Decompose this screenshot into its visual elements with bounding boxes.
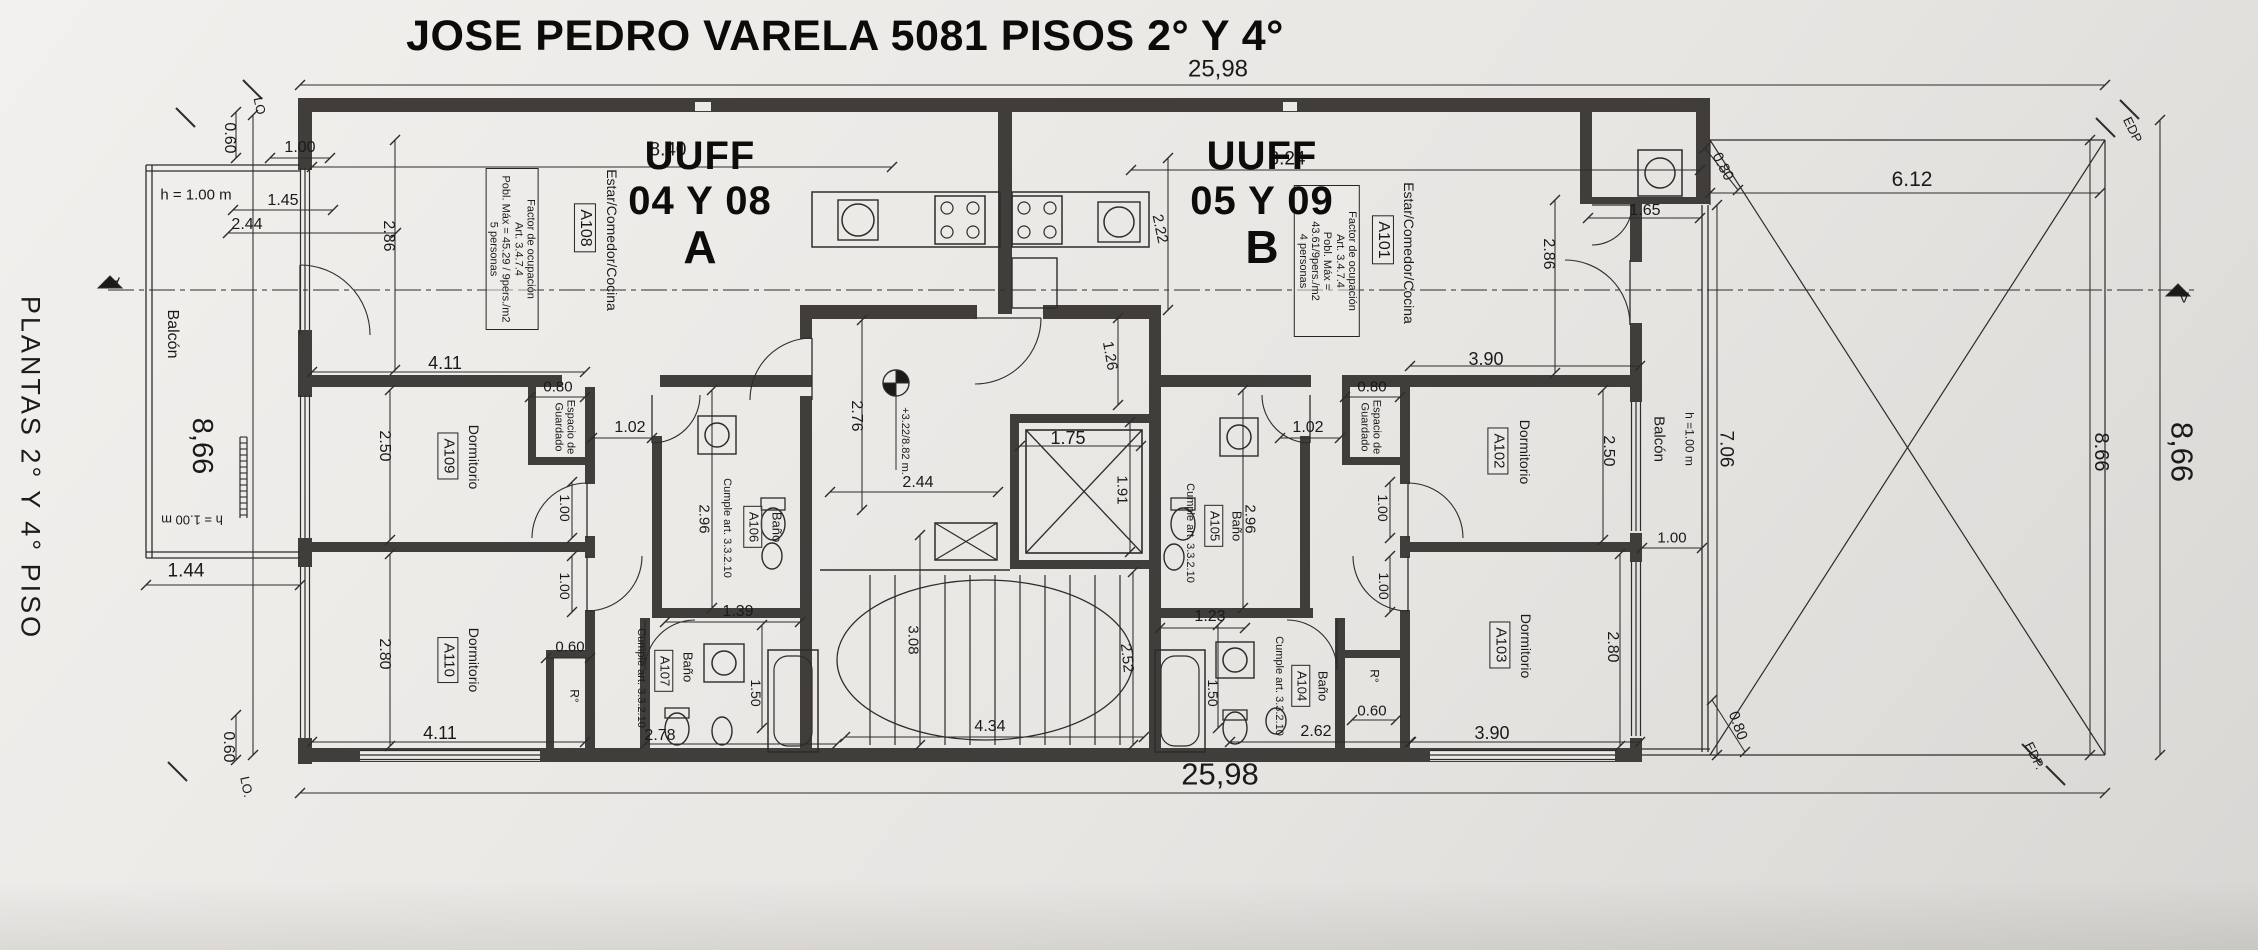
unit-a-numbers: 04 Y 08 <box>628 179 771 224</box>
unit-b-header: UUFF 05 Y 09 B <box>1190 134 1333 270</box>
plan-side-label: PLANTAS 2° Y 4° PISO <box>15 296 46 640</box>
unit-b-numbers: 05 Y 09 <box>1190 179 1333 224</box>
patio <box>1642 140 2105 755</box>
unit-a-header: UUFF 04 Y 08 A <box>628 134 771 270</box>
section-line <box>98 276 2195 296</box>
page-title: JOSE PEDRO VARELA 5081 PISOS 2° Y 4° <box>406 12 1284 61</box>
doors <box>300 205 1632 670</box>
unit-b-letter: B <box>1190 224 1333 270</box>
unit-b-uuff: UUFF <box>1190 134 1333 179</box>
bathroom-fixtures <box>665 416 1286 752</box>
walls <box>298 98 1710 764</box>
unit-a-uuff: UUFF <box>628 134 771 179</box>
floor-plan-drawing <box>0 0 2258 950</box>
unit-a-letter: A <box>628 224 771 270</box>
stairs <box>820 570 1133 745</box>
balcony-railings <box>146 165 1710 752</box>
elevation-marker <box>883 370 909 470</box>
duct-shaft <box>935 523 997 560</box>
scanned-floor-plan-page: 25,9825,986.128.668,668,66EDPEDP.LOLO.Ba… <box>0 0 2258 950</box>
elevator-shaft <box>1026 430 1142 553</box>
